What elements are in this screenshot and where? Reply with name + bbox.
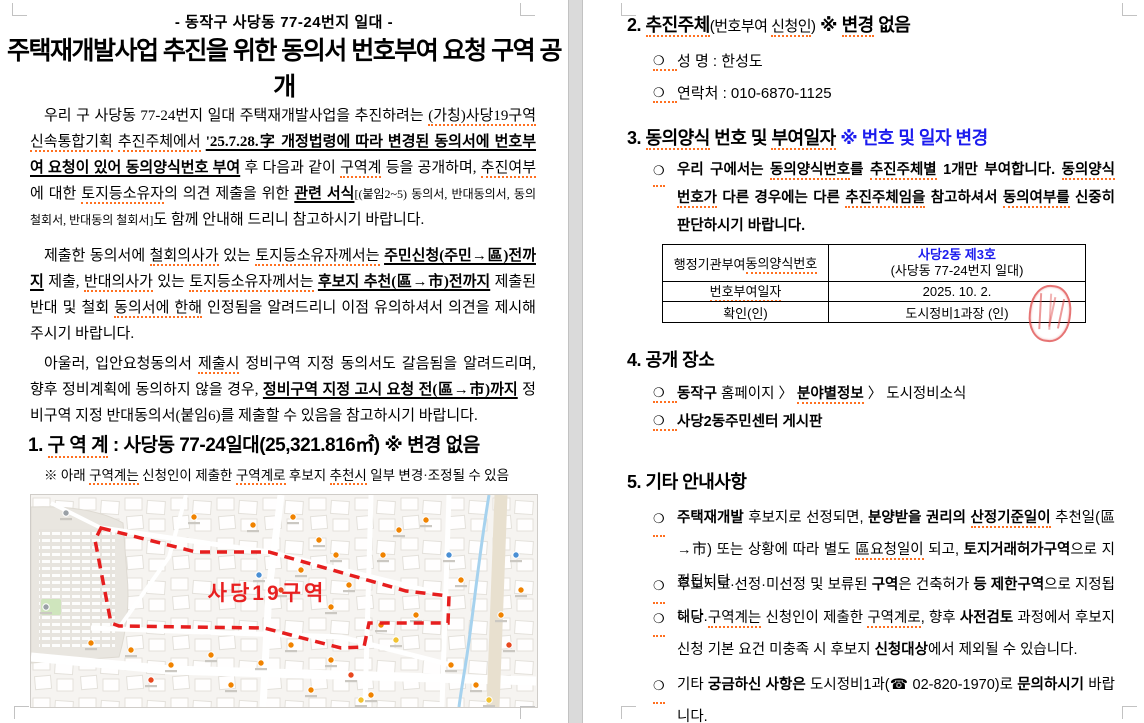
intro-paragraph-2: 제출한 동의서에 철회의사가 있는 토지등소유자께서는 주민신청(주민→區)전까… [30, 243, 536, 347]
table-label-confirm: 확인(인) [663, 301, 829, 322]
map-poi-marker [486, 697, 492, 703]
corner-mark [12, 3, 27, 16]
disclosure-place-item: ❍사당2동주민센터 게시판 [653, 410, 823, 431]
map-poi-marker [250, 522, 256, 528]
disclosure-place-text: 동작구 홈페이지 〉 분야별정보 〉 도시정비소식 [677, 386, 966, 404]
map-poi-marker [458, 577, 464, 583]
bullet-icon: ❍ [653, 413, 677, 431]
map-poi-marker [63, 510, 69, 516]
map-poi-marker [228, 682, 234, 688]
guidance-item: ❍ 기타 궁금하신 사항은 도시정비1과(☎ 02-820-1970)로 문의하… [653, 669, 1115, 723]
doc-title: 주택재개발사업 추진을 위한 동의서 번호부여 요청 구역 공개 [0, 31, 568, 103]
map-riverside-road [493, 495, 501, 707]
corner-mark [520, 706, 535, 719]
bullet-icon: ❍ [653, 670, 665, 704]
doc-subtitle: - 동작구 사당동 77-24번지 일대 - [0, 11, 568, 32]
section-3-heading: 3. 동의양식 번호 및 부여일자 ※ 번호 및 일자 변경 [627, 124, 988, 150]
map-district-label: 사당19구역 [208, 582, 327, 605]
map-poi-marker [128, 647, 134, 653]
map-poi-marker [506, 642, 512, 648]
document-view: - 동작구 사당동 77-24번지 일대 - 주택재개발사업 추진을 위한 동의… [0, 0, 1144, 723]
map-poi-marker [148, 677, 154, 683]
section-1-heading: 1. 구 역 계 : 사당동 77-24일대(25,321.816㎡) ※ 변경… [28, 430, 480, 457]
corner-mark [520, 3, 535, 16]
form-number-notice: ❍ 우리 구에서는 동의양식번호를 추진주체별 1개만 부여합니다. 동의양식 … [653, 156, 1115, 240]
corner-mark [1122, 3, 1137, 16]
section-1-note: ※ 아래 구역계는 신청인이 제출한 구역계로 후보지 추천시 일부 변경·조정… [44, 464, 509, 484]
district-map: 사당19구역 [30, 494, 538, 708]
corner-mark [621, 706, 636, 719]
guidance-item: ❍ 해당 구역계는 신청인이 제출한 구역계로, 향후 사전검토 과정에서 후보… [653, 602, 1115, 666]
map-poi-marker [423, 517, 429, 523]
bullet-icon: ❍ [653, 85, 677, 103]
page-divider [568, 0, 583, 723]
map-poi-marker [358, 697, 364, 703]
guidance-item-text: 해당 구역계는 신청인이 제출한 구역계로, 향후 사전검토 과정에서 후보지 … [653, 602, 1115, 666]
guidance-item-text: 기타 궁금하신 사항은 도시정비1과(☎ 02-820-1970)로 문의하시기… [653, 669, 1115, 723]
table-label-form-number: 행정기관부여 동의양식번호 [663, 245, 829, 281]
bullet-icon: ❍ [653, 503, 665, 537]
section-2-heading: 2. 추진주체(번호부여 신청인) ※ 변경 없음 [627, 11, 910, 37]
intro-paragraph-3: 아울러, 입안요청동의서 제출시 정비구역 지정 동의서도 갈음됨을 알려드리며… [30, 351, 536, 429]
disclosure-place-item: ❍동작구 홈페이지 〉 분야별정보 〉 도시정비소식 [653, 382, 966, 403]
map-poi-marker [518, 587, 524, 593]
map-poi-marker [333, 552, 339, 558]
map-poi-marker [513, 552, 519, 558]
corner-mark [14, 706, 29, 719]
map-poi-marker [328, 657, 334, 663]
section-4-heading: 4. 공개 장소 [627, 346, 714, 372]
map-poi-marker [258, 660, 264, 666]
page-1: - 동작구 사당동 77-24번지 일대 - 주택재개발사업 추진을 위한 동의… [0, 0, 568, 723]
bullet-icon: ❍ [653, 570, 665, 604]
map-poi-marker [256, 572, 262, 578]
intro-paragraph-1: 우리 구 사당동 77-24번지 일대 주택재개발사업을 추진하려는 (가칭)사… [30, 103, 536, 233]
map-poi-marker [368, 692, 374, 698]
map-poi-marker [308, 687, 314, 693]
map-image: 사당19구역 [31, 495, 537, 707]
map-poi-marker [346, 582, 352, 588]
form-number-value: 사당2동 제3호 [891, 247, 1024, 263]
corner-mark [621, 3, 636, 16]
map-poi-marker [316, 537, 322, 543]
map-poi-marker [348, 672, 354, 678]
bullet-icon: ❍ [653, 603, 665, 637]
table-value-form-number: 사당2동 제3호 (사당동 77-24번지 일대) [829, 245, 1085, 281]
disclosure-place-text: 사당2동주민센터 게시판 [677, 414, 823, 430]
section-5-heading: 5. 기타 안내사항 [627, 468, 746, 494]
corner-mark [1122, 706, 1137, 719]
map-poi-marker [191, 514, 197, 520]
map-poi-marker [43, 604, 49, 610]
table-label-issue-date: 번호부여일자 [663, 281, 829, 301]
map-poi-marker [288, 642, 294, 648]
map-poi-marker [290, 514, 296, 520]
map-poi-marker [473, 682, 479, 688]
map-poi-marker [328, 604, 334, 610]
form-number-area: (사당동 77-24번지 일대) [891, 263, 1024, 279]
map-poi-marker [168, 662, 174, 668]
map-poi-marker [413, 612, 419, 618]
map-poi-marker [393, 637, 399, 643]
map-poi-marker [88, 640, 94, 646]
form-number-notice-text: 우리 구에서는 동의양식번호를 추진주체별 1개만 부여합니다. 동의양식 번호… [653, 156, 1115, 240]
applicant-contact-item: ❍연락처 : 010-6870-1125 [653, 82, 832, 103]
bullet-icon: ❍ [653, 157, 665, 187]
applicant-contact-text: 연락처 : 010-6870-1125 [677, 85, 832, 102]
map-poi-marker [498, 612, 504, 618]
map-poi-marker [298, 567, 304, 573]
map-poi-marker [448, 662, 454, 668]
map-poi-marker [380, 552, 386, 558]
bullet-icon: ❍ [653, 53, 677, 71]
applicant-name-item: ❍성 명 : 한성도 [653, 50, 763, 71]
map-poi-marker [446, 552, 452, 558]
bullet-icon: ❍ [653, 385, 677, 403]
map-poi-marker [396, 527, 402, 533]
map-poi-marker [208, 652, 214, 658]
form-number-table: 행정기관부여 동의양식번호 사당2동 제3호 (사당동 77-24번지 일대) … [662, 244, 1086, 323]
applicant-name-text: 성 명 : 한성도 [677, 53, 763, 70]
page-2: 2. 추진주체(번호부여 신청인) ※ 변경 없음 ❍성 명 : 한성도 ❍연락… [583, 0, 1144, 723]
